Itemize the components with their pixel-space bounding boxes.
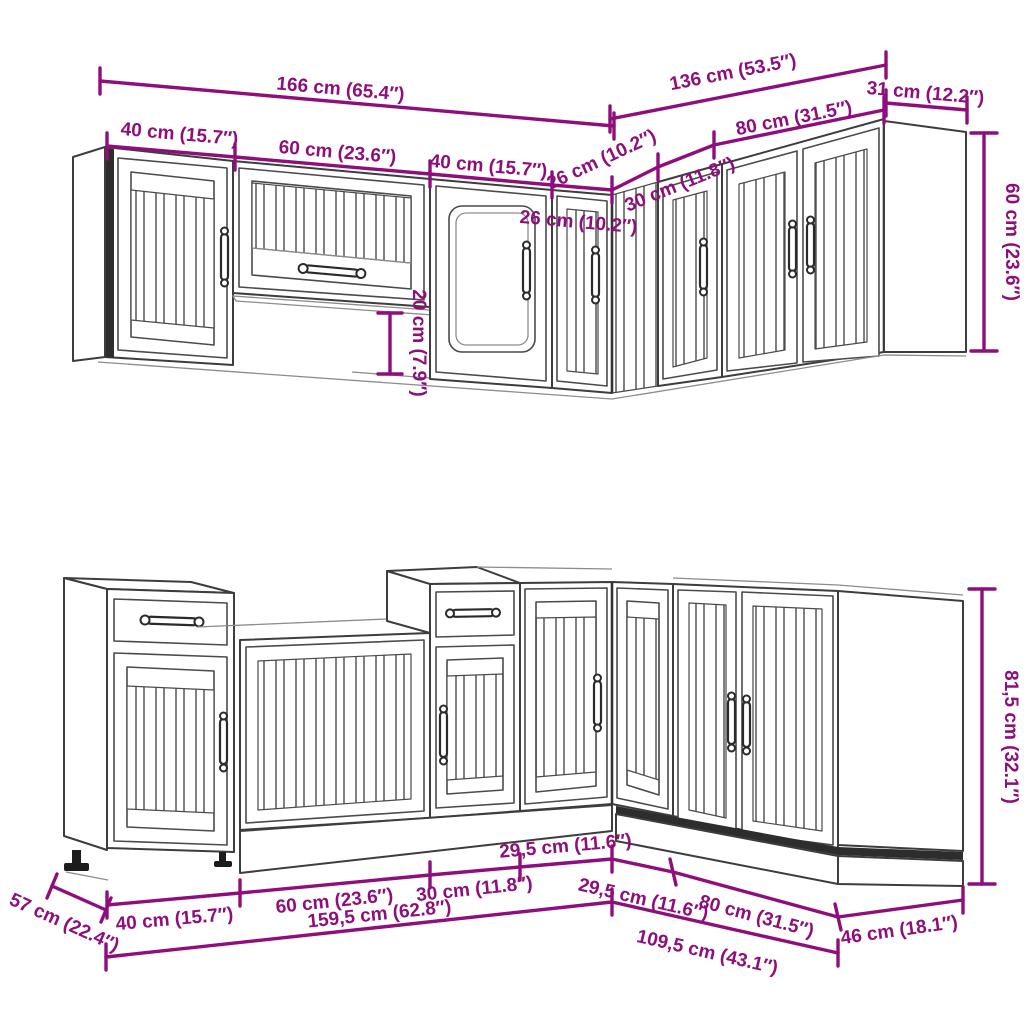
upper-left-side-panel bbox=[73, 147, 105, 361]
dim-label-upper-26-right: 26 cm (10.2″) bbox=[544, 126, 660, 195]
door-handle bbox=[592, 247, 599, 304]
door-handle bbox=[220, 713, 227, 772]
door-handle bbox=[743, 696, 750, 755]
lower-right-end-panel bbox=[838, 591, 963, 851]
dim-label-upper-height-offset: 20 cm (7.9″) bbox=[408, 289, 429, 396]
lower-cabinet-40 bbox=[64, 578, 234, 880]
product-dimension-image: 166 cm (65.4″) 136 cm (53.5″) 31 cm (12.… bbox=[0, 0, 1024, 1024]
door-handle bbox=[221, 228, 228, 287]
kitchen-dimension-diagram: 166 cm (65.4″) 136 cm (53.5″) 31 cm (12.… bbox=[0, 0, 1024, 1024]
lower-cabinets-illustration bbox=[64, 567, 963, 886]
dim-label-upper-40-a: 40 cm (15.7″) bbox=[120, 119, 239, 150]
door-handle bbox=[789, 221, 796, 278]
upper-cabinet-80-double bbox=[722, 119, 884, 377]
dim-label-lower-side-depth: 46 cm (18.1″) bbox=[839, 912, 959, 949]
drawer-handle bbox=[446, 609, 500, 618]
door-handle bbox=[807, 217, 814, 274]
dim-label-lower-corner-right: 29,5 cm (11.6″) bbox=[576, 874, 710, 924]
lower-cabinet-corner-right bbox=[612, 582, 673, 816]
dim-label-lower-height: 81,5 cm (32.1″) bbox=[1000, 670, 1021, 804]
upper-right-end-panel bbox=[884, 121, 966, 352]
dim-label-upper-40-b: 40 cm (15.7″) bbox=[429, 151, 548, 182]
cabinet-side bbox=[64, 578, 107, 850]
door-handle bbox=[440, 706, 447, 765]
dim-label-upper-total-right: 136 cm (53.5″) bbox=[668, 50, 798, 95]
adjustable-foot bbox=[64, 850, 232, 871]
plinth-end-panel bbox=[838, 856, 963, 886]
dim-label-lower-depth: 57 cm (22.4″) bbox=[6, 889, 122, 956]
door-handle bbox=[523, 242, 530, 300]
dim-label-lower-40: 40 cm (15.7″) bbox=[115, 904, 234, 935]
door-handle bbox=[700, 239, 707, 296]
dim-label-upper-height: 60 cm (23.6″) bbox=[1001, 183, 1022, 301]
upper-cabinet-60 bbox=[233, 161, 433, 378]
door-handle bbox=[728, 693, 735, 752]
door-handle bbox=[594, 675, 601, 732]
upper-cabinet-40-left bbox=[105, 147, 233, 365]
